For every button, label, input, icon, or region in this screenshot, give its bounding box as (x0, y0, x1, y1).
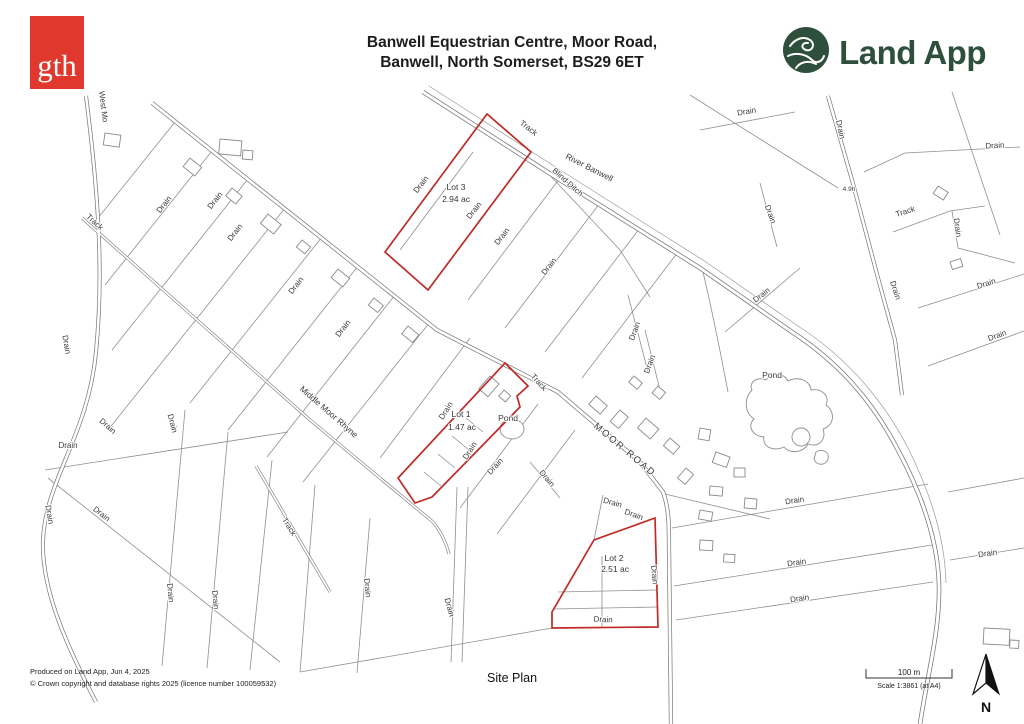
drain-label: Drain (593, 615, 613, 625)
pond-label: Pond (498, 413, 518, 423)
drain-label: Drain (210, 590, 221, 610)
produced-line: Produced on Land App, Jun 4, 2025 (30, 666, 276, 678)
site-plan-page: gth Banwell Equestrian Centre, Moor Road… (0, 0, 1024, 724)
lot-2-area: 2.51 ac (601, 564, 630, 574)
lot-3-area: 2.94 ac (442, 194, 471, 204)
drain-label: Drain (165, 583, 176, 603)
drain-label: Drain (362, 578, 373, 598)
track-label: Track (518, 118, 540, 138)
drain-label: Drain (623, 507, 644, 522)
scale-bar-label: 100 m (898, 668, 921, 677)
middle-moor-rhyne-label: Middle Moor Rhyne (298, 384, 360, 440)
drain-label: Drain (461, 440, 479, 461)
lot-1-name: Lot 1 (452, 409, 471, 419)
drain-label: Drain (785, 495, 805, 507)
drain-label: Drain (787, 557, 807, 569)
area-marker-label: 4.9h (843, 186, 856, 193)
scale-bar: 100 m Scale 1:3861 (at A4) (866, 668, 952, 690)
drain-label: Drain (790, 593, 810, 605)
lot-1-area: 1.47 ac (448, 422, 477, 432)
drain-label: Drain (763, 204, 778, 225)
pond-label: Pond (762, 370, 782, 380)
track-label: Track (894, 204, 916, 219)
drain-label: Drain (98, 416, 118, 435)
west-moor-label: West Mo (97, 91, 110, 124)
copyright-line: © Crown copyright and database rights 20… (30, 678, 276, 690)
drain-label: Drain (493, 226, 512, 247)
plan-name: Site Plan (487, 671, 537, 685)
drain-label: Drain (751, 286, 772, 305)
drain-label: Drain (978, 548, 998, 560)
drain-label: Drain (155, 194, 174, 215)
drain-label: Drain (334, 318, 353, 339)
lot-3-name: Lot 3 (447, 182, 466, 192)
north-arrow: N (973, 654, 999, 715)
drain-label: Drain (226, 222, 245, 243)
drain-label: Drain (60, 334, 72, 354)
drain-label: Drain (834, 119, 847, 140)
drain-label: Drain (58, 441, 77, 450)
drain-label: Drain (976, 276, 997, 290)
buildings (103, 133, 1019, 648)
drain-label: Drain (166, 413, 180, 434)
drain-label: Drain (985, 141, 1005, 151)
drain-label: Drain (952, 218, 964, 238)
drain-label: Drain (649, 565, 660, 585)
drain-label: Drain (485, 456, 504, 476)
drain-label: Drain (206, 190, 225, 211)
drain-label: Drain (537, 468, 556, 488)
drain-label: Drain (736, 105, 756, 117)
scale-text: Scale 1:3861 (at A4) (877, 683, 940, 690)
drain-label: Drain (602, 496, 623, 510)
drain-label: Drain (412, 174, 431, 195)
drain-label: Drain (540, 256, 559, 277)
track-label: Track (529, 372, 550, 393)
drain-label: Drain (888, 280, 902, 301)
drain-label: Drain (443, 597, 457, 618)
site-plan-map: Drain Drain Drain Drain Drain Drain Drai… (0, 0, 1024, 724)
north-label: N (981, 699, 991, 715)
footer-attribution: Produced on Land App, Jun 4, 2025 © Crow… (30, 666, 276, 690)
lot-2-name: Lot 2 (605, 553, 624, 563)
drain-label: Drain (627, 321, 642, 342)
